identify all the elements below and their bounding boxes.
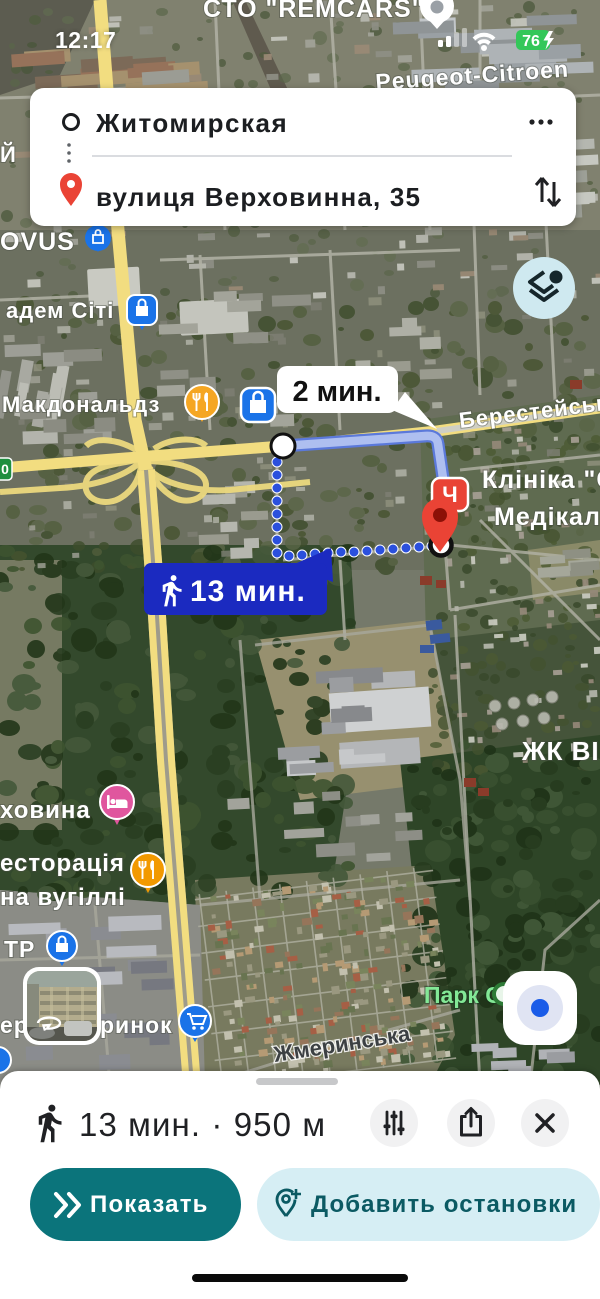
svg-text:Клініка "С: Клініка "С [482,466,600,494]
svg-text:есторація: есторація [0,850,125,877]
svg-text:адем Сіті: адем Сіті [6,298,114,323]
svg-text:Й: Й [0,142,17,167]
svg-text:OVUS: OVUS [0,228,75,256]
svg-text:ринок: ринок [100,1012,173,1038]
svg-text:2 мин.: 2 мин. [292,376,381,408]
svg-text:на вугіллі: на вугіллі [0,884,126,911]
svg-text:Медікал": Медікал" [494,503,600,531]
svg-text:13 мин.: 13 мин. [190,575,306,608]
svg-text:76: 76 [522,33,540,50]
svg-text:ТР: ТР [4,936,35,962]
svg-text:ЖК ВІ: ЖК ВІ [521,736,600,766]
svg-text:Парк С: Парк С [424,982,502,1008]
svg-text:Макдональдз: Макдональдз [2,392,160,417]
svg-text:СТО "REMCARS": СТО "REMCARS" [203,0,425,23]
svg-text:0: 0 [1,461,9,477]
svg-text:ховина: ховина [0,797,91,824]
